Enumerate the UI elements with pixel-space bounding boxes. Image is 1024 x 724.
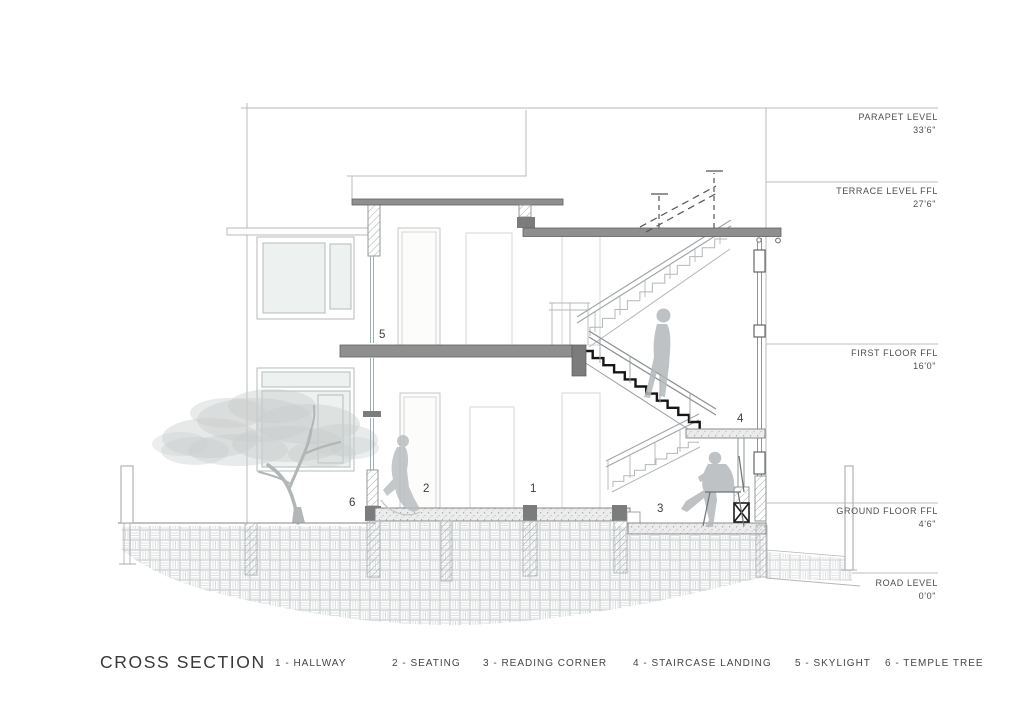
callout-staircase-landing: 4	[737, 413, 744, 425]
first-floor-window	[257, 237, 354, 319]
ground-hatch	[118, 521, 860, 625]
window-canopy	[227, 228, 368, 235]
level-elevation: 4'6"	[836, 518, 938, 531]
person-walking-stairs	[644, 309, 671, 399]
level-parapet: PARAPET LEVEL 33'6"	[858, 111, 938, 137]
level-name: ROAD LEVEL	[875, 577, 938, 590]
level-first-floor: FIRST FLOOR FFL 16'0"	[851, 347, 938, 373]
callout-temple-tree: 6	[349, 497, 356, 509]
level-terrace: TERRACE LEVEL FFL 27'6"	[836, 185, 938, 211]
level-elevation: 27'6"	[836, 198, 938, 211]
level-road: ROAD LEVEL 0'0"	[875, 577, 938, 603]
legend-item-seating: 2 - SEATING	[392, 658, 461, 669]
callout-skylight: 5	[379, 329, 386, 341]
callout-hallway: 1	[530, 483, 537, 495]
level-elevation: 16'0"	[851, 360, 938, 373]
terrace-stair-railing	[640, 171, 723, 232]
callout-reading-corner: 3	[657, 503, 664, 515]
level-ground-floor: GROUND FLOOR FFL 4'6"	[836, 505, 938, 531]
right-glazed-wall	[754, 238, 766, 521]
level-name: GROUND FLOOR FFL	[836, 505, 938, 518]
callout-seating: 2	[423, 483, 430, 495]
level-name: PARAPET LEVEL	[858, 111, 938, 124]
legend-item-hallway: 1 - HALLWAY	[275, 658, 346, 669]
level-elevation: 0'0"	[875, 590, 938, 603]
level-lines	[762, 108, 938, 573]
level-name: FIRST FLOOR FFL	[851, 347, 938, 360]
level-elevation: 33'6"	[858, 124, 938, 137]
legend-item-staircase-landing: 4 - STAIRCASE LANDING	[633, 658, 772, 669]
cross-section-sheet: PARAPET LEVEL 33'6" TERRACE LEVEL FFL 27…	[0, 0, 1024, 724]
legend-item-skylight: 5 - SKYLIGHT	[795, 658, 871, 669]
door-openings	[398, 228, 600, 508]
level-name: TERRACE LEVEL FFL	[836, 185, 938, 198]
legend-item-temple-tree: 6 - TEMPLE TREE	[885, 658, 984, 669]
legend-item-reading-corner: 3 - READING CORNER	[483, 658, 607, 669]
drawing-title: CROSS SECTION	[100, 652, 266, 673]
